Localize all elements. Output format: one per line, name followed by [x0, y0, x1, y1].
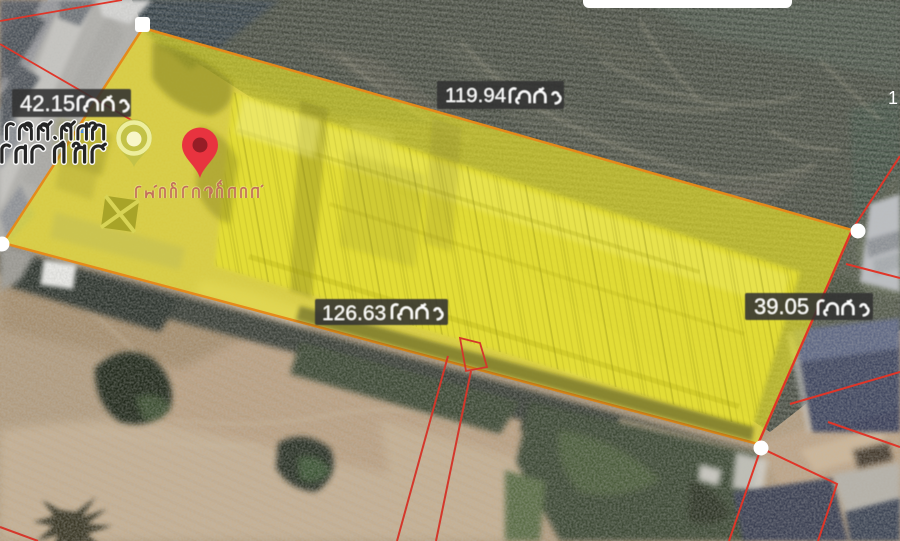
svg-text:1: 1 — [888, 88, 898, 108]
svg-text:42.15: 42.15 — [20, 91, 75, 116]
svg-text:39.05: 39.05 — [754, 294, 809, 319]
svg-text:126.63: 126.63 — [322, 302, 386, 325]
svg-text:119.94: 119.94 — [445, 84, 506, 107]
